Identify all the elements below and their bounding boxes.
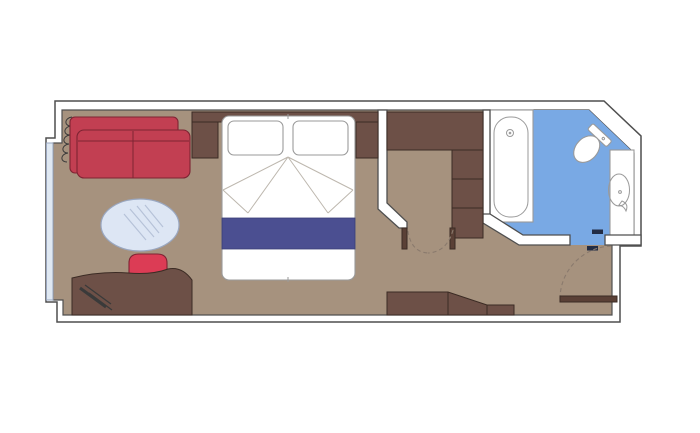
entrance-door — [560, 296, 617, 302]
wall-dressing-bathroom — [483, 110, 490, 218]
vanity-counter — [610, 150, 634, 236]
wall-bathroom-bottom-right — [605, 235, 641, 245]
bed-runner — [222, 218, 355, 249]
wardrobe-shelves — [452, 150, 483, 238]
floorplan-canvas — [0, 0, 700, 433]
coffee-table — [101, 199, 179, 251]
nightstand-right — [356, 122, 378, 158]
pillow-left — [228, 121, 283, 155]
desk — [72, 268, 192, 315]
window — [47, 143, 54, 300]
pillow-right — [293, 121, 348, 155]
wardrobe-cabinet — [387, 112, 483, 150]
nightstand-left — [192, 122, 218, 158]
cabin-floorplan — [0, 0, 700, 433]
bathroom-door-hardware-top — [592, 230, 603, 235]
dressing-door-jamb-left — [402, 228, 407, 249]
